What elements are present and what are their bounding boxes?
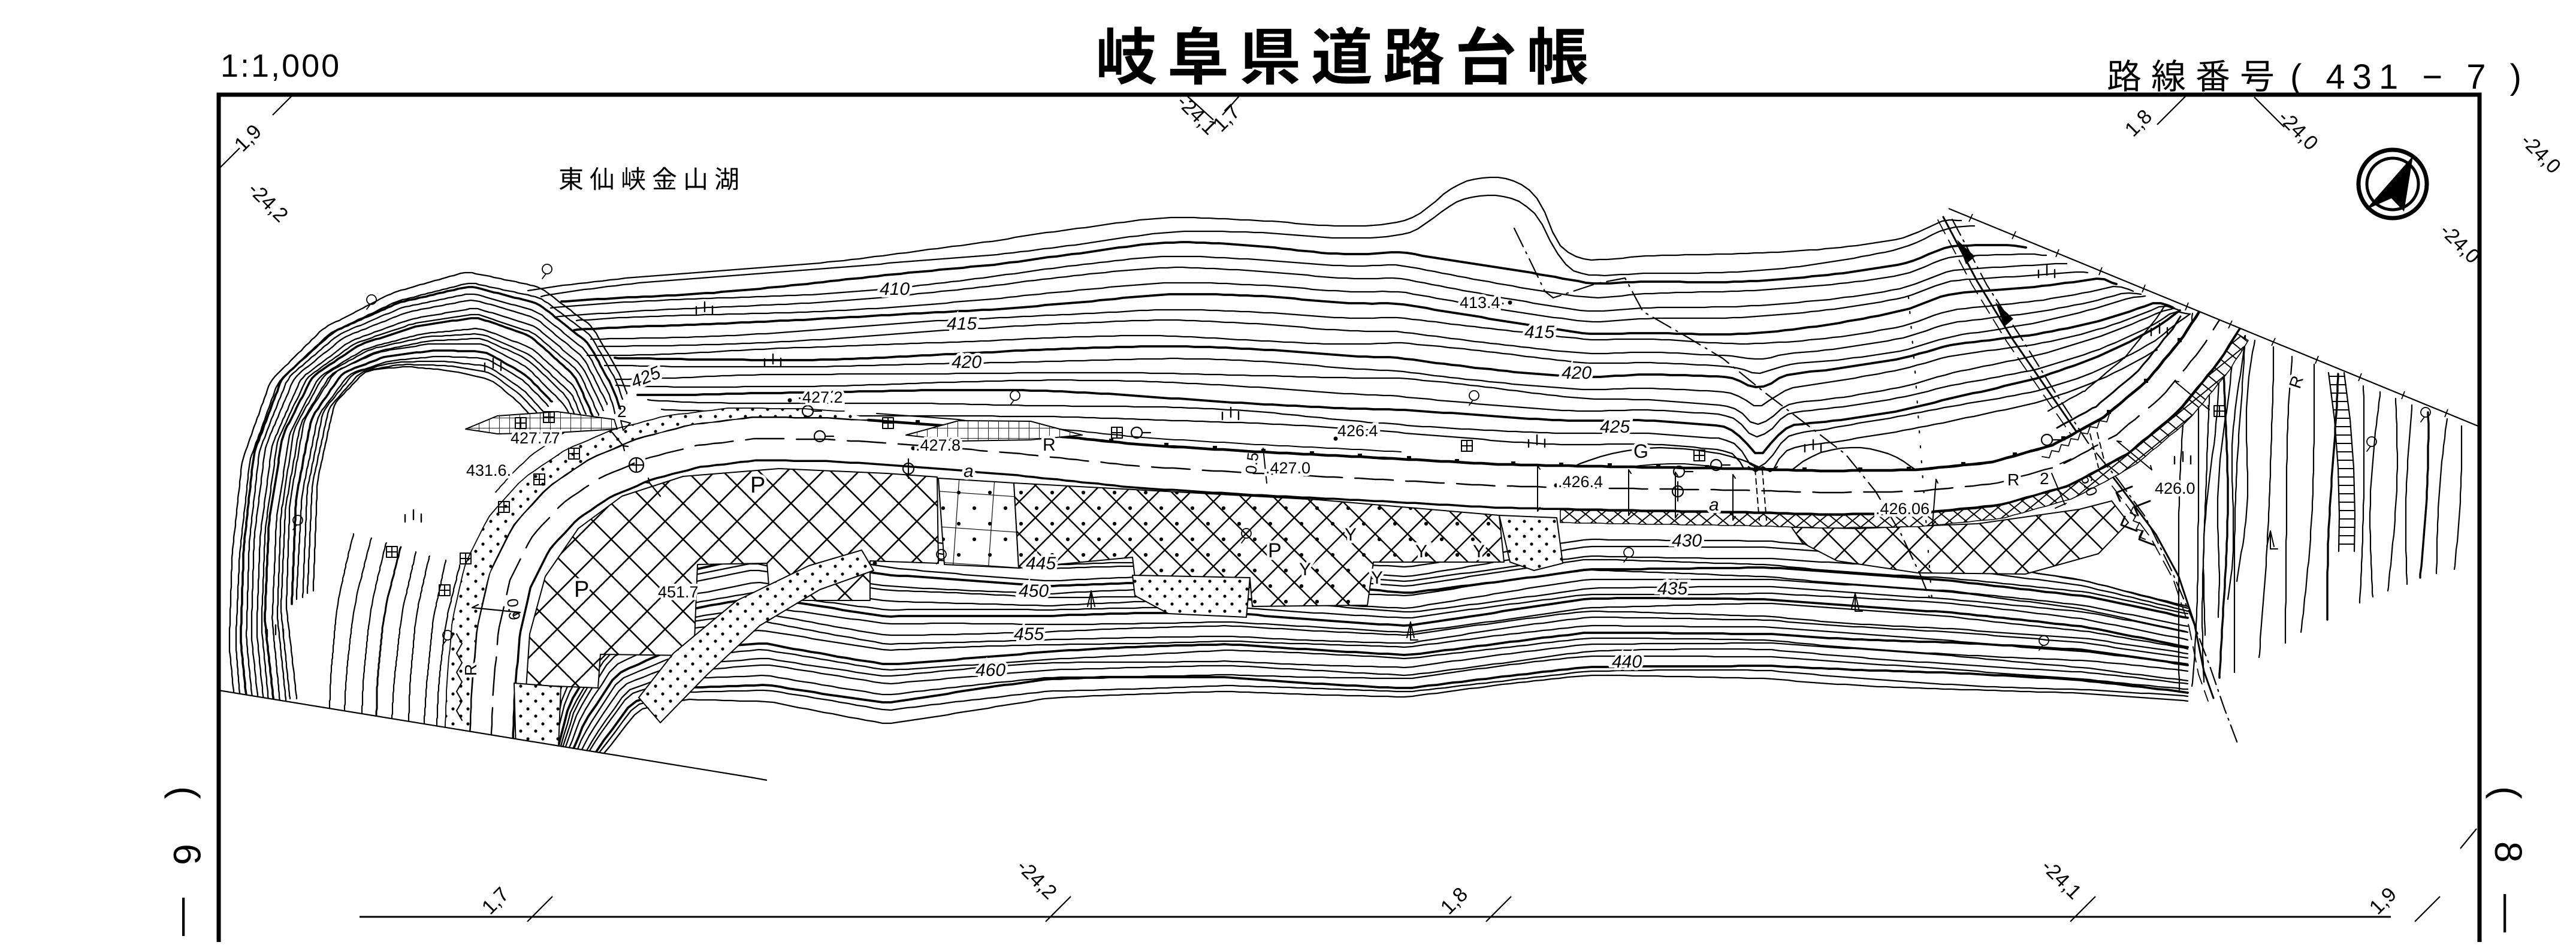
svg-text:·427.2: ·427.2 [797,388,843,406]
svg-text:a: a [964,461,974,481]
svg-text:1:1,000: 1:1,000 [221,48,341,84]
svg-text:Y: Y [1299,560,1311,579]
svg-text:(: ( [2486,786,2529,799]
svg-text:( 431 − 7 ): ( 431 − 7 ) [2290,58,2529,96]
svg-text:415: 415 [947,314,977,334]
svg-text:G: G [1633,440,1648,462]
svg-text:P: P [574,577,589,602]
svg-text:.427.0: .427.0 [1266,459,1310,477]
svg-text:420: 420 [1562,363,1591,383]
svg-text:6: 6 [165,844,209,865]
svg-text:415: 415 [1524,322,1554,342]
svg-text:R: R [2007,470,2019,489]
svg-text:431.6.: 431.6. [466,461,511,479]
svg-text:Y: Y [1473,542,1485,561]
svg-text:426.4: 426.4 [1337,422,1378,440]
svg-text:P: P [1268,539,1282,562]
svg-text:0.5: 0.5 [1242,451,1262,475]
svg-text:0.9: 0.9 [503,597,524,621]
svg-text:440: 440 [1612,652,1642,672]
svg-text:—: — [2487,894,2530,932]
svg-text:R: R [461,664,480,676]
svg-text:410: 410 [880,279,910,299]
svg-text:445: 445 [1026,554,1056,573]
svg-text:2: 2 [617,402,627,421]
svg-text:Y: Y [1415,542,1427,561]
svg-text:(: ( [164,786,207,799]
svg-text:426.0: 426.0 [2155,479,2196,497]
svg-text:a: a [1709,495,1719,515]
svg-text:460: 460 [976,660,1005,680]
svg-text:420: 420 [952,352,982,372]
svg-text:425: 425 [1600,417,1630,437]
svg-text:450: 450 [1019,581,1049,601]
svg-text:P: P [750,473,765,498]
svg-text:427.77: 427.77 [511,429,560,447]
svg-text:Y: Y [1345,525,1357,545]
svg-text:.426.4: .426.4 [1558,473,1603,491]
svg-text:.427.8: .427.8 [916,436,961,454]
svg-text:430: 430 [1672,531,1702,551]
svg-text:413.4·: 413.4· [1460,294,1506,312]
svg-text:455: 455 [1014,624,1044,644]
svg-text:2: 2 [2040,469,2049,488]
svg-text:435: 435 [1657,579,1687,599]
svg-text:.426.06: .426.06 [1876,500,1929,518]
svg-text:451.7: 451.7 [658,583,699,601]
svg-text:Y: Y [1371,568,1383,588]
svg-text:8: 8 [2487,841,2530,863]
svg-text:—: — [165,898,209,936]
svg-text:R: R [1043,435,1056,455]
